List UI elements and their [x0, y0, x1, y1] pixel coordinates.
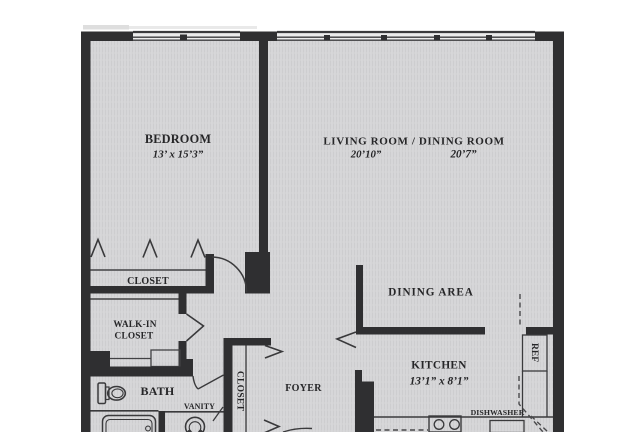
svg-text:FOYER: FOYER: [285, 383, 322, 394]
svg-text:VANITY: VANITY: [184, 402, 215, 411]
svg-text:CLOSET: CLOSET: [115, 332, 155, 342]
svg-text:LIVING ROOM / DINING ROOM: LIVING ROOM / DINING ROOM: [323, 136, 504, 148]
svg-text:13’ x 15’3”: 13’ x 15’3”: [153, 149, 204, 161]
svg-text:WALK-IN: WALK-IN: [113, 320, 156, 330]
svg-text:REF: REF: [529, 343, 539, 362]
svg-text:KITCHEN: KITCHEN: [411, 360, 467, 372]
svg-text:DINING AREA: DINING AREA: [388, 287, 473, 299]
svg-text:20’10”: 20’10”: [350, 149, 382, 161]
svg-text:13’1” x 8’1”: 13’1” x 8’1”: [410, 376, 469, 388]
svg-text:CLOSET: CLOSET: [235, 371, 245, 412]
svg-text:BEDROOM: BEDROOM: [145, 132, 211, 146]
svg-text:CLOSET: CLOSET: [127, 276, 169, 287]
svg-text:DISHWASHER: DISHWASHER: [471, 408, 525, 417]
svg-text:BATH: BATH: [141, 384, 175, 398]
svg-text:20’7”: 20’7”: [449, 149, 477, 161]
